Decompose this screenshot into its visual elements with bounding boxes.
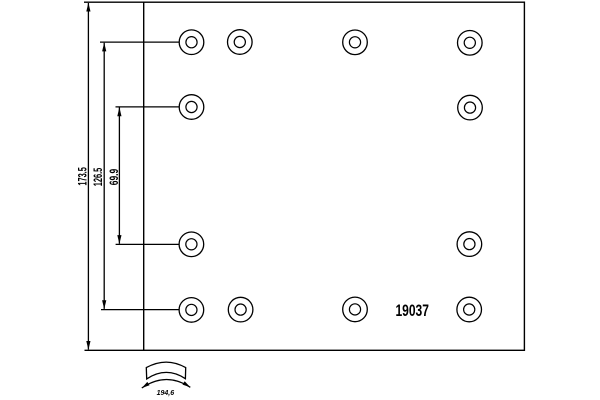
svg-text:173.5: 173.5: [77, 167, 89, 186]
svg-text:19037: 19037: [395, 301, 429, 320]
svg-text:69.9: 69.9: [109, 169, 121, 186]
svg-text:126.5: 126.5: [93, 167, 105, 186]
svg-text:194,6: 194,6: [157, 388, 175, 397]
